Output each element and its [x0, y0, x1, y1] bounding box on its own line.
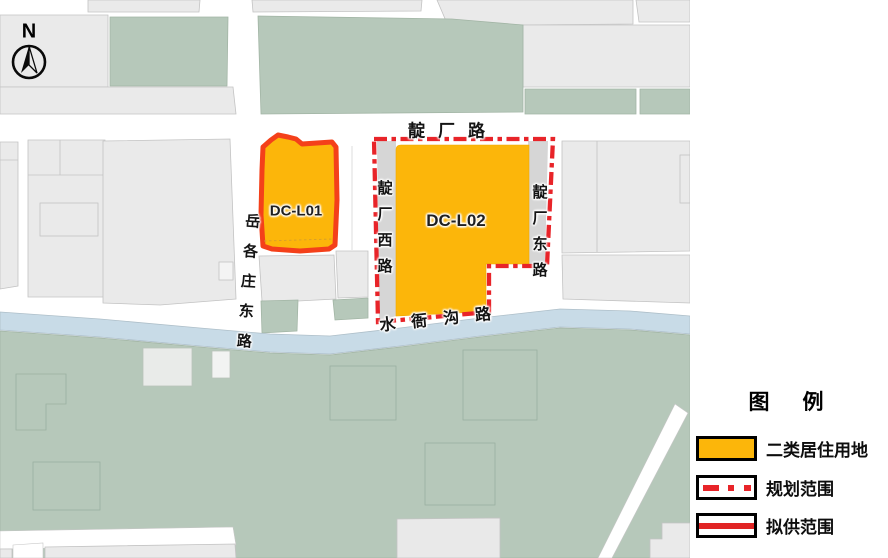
legend-title: 图 例 — [749, 386, 830, 416]
road-label-dianchang-dong-lu: 靛厂东路 — [529, 184, 550, 288]
parcel-label-dc-l02: DC-L02 — [426, 211, 486, 231]
legend-swatch-residential — [696, 436, 757, 461]
legend-label-residential: 二类居住用地 — [766, 436, 868, 461]
legend-item-residential: 二类居住用地 — [696, 436, 868, 461]
map-canvas — [0, 0, 690, 558]
legend-swatch-planning-boundary — [696, 475, 757, 500]
legend-item-supply-boundary: 拟供范围 — [696, 513, 834, 538]
legend-label-supply-boundary: 拟供范围 — [766, 513, 834, 538]
road-label-dianchang-lu: 靛厂路 — [408, 117, 498, 142]
legend-item-planning-boundary: 规划范围 — [696, 475, 834, 500]
legend-swatch-supply-boundary — [696, 513, 757, 538]
north-label: N — [22, 21, 36, 44]
parcel-label-dc-l01: DC-L01 — [270, 203, 323, 220]
road-label-dianchang-xi-lu: 靛厂西路 — [374, 180, 395, 284]
legend-label-planning-boundary: 规划范围 — [766, 475, 834, 500]
parcel-DC-L01[interactable] — [261, 135, 337, 251]
planning-map-page: N 靛厂路 靛厂西路 靛厂东路 岳各庄东路 水衙沟路 DC-L01 DC-L02… — [0, 0, 888, 558]
